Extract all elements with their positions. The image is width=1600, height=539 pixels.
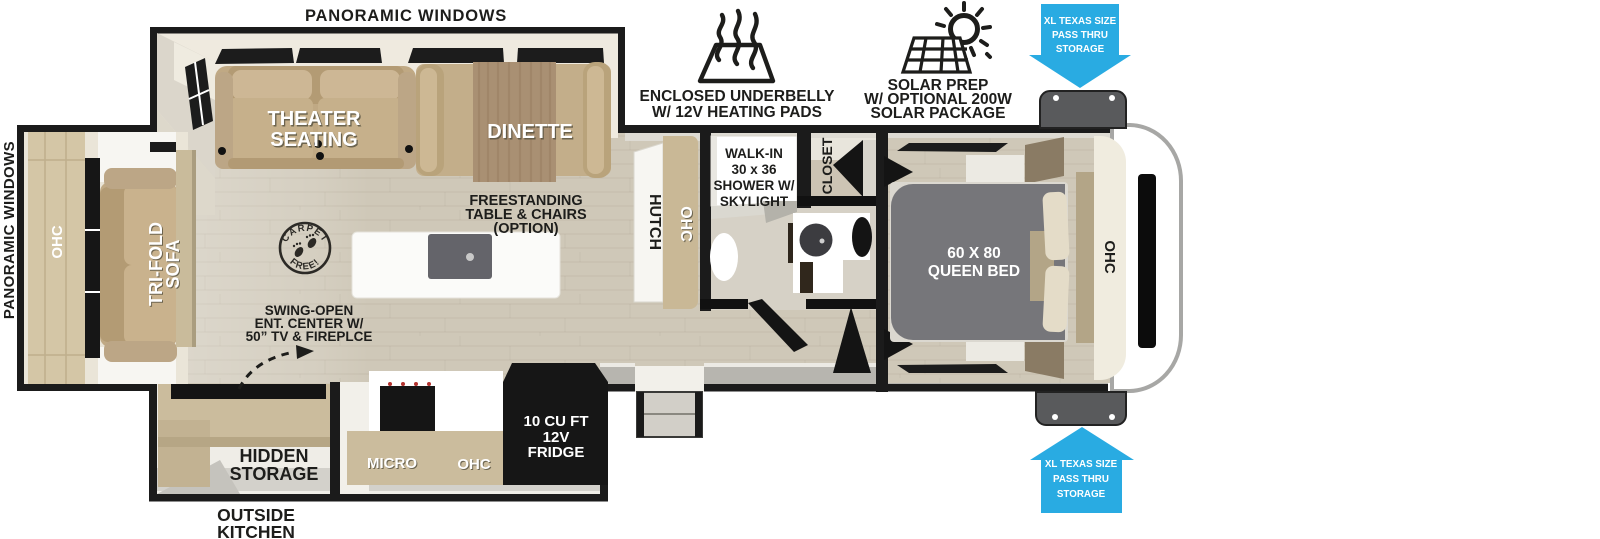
svg-text:KITCHEN: KITCHEN bbox=[217, 522, 295, 539]
svg-text:PANORAMIC WINDOWS: PANORAMIC WINDOWS bbox=[1, 141, 18, 319]
svg-text:XL TEXAS SIZE: XL TEXAS SIZE bbox=[1044, 16, 1117, 27]
svg-text:SHOWER W/: SHOWER W/ bbox=[714, 178, 795, 193]
svg-text:MICRO: MICRO bbox=[367, 455, 417, 472]
svg-text:OHC: OHC bbox=[1101, 240, 1118, 274]
svg-text:PASS THRU: PASS THRU bbox=[1052, 30, 1108, 41]
svg-text:PASS THRU: PASS THRU bbox=[1053, 474, 1109, 485]
svg-text:SOFA: SOFA bbox=[163, 239, 183, 288]
svg-text:(OPTION): (OPTION) bbox=[493, 221, 558, 237]
svg-text:OHC: OHC bbox=[457, 456, 491, 473]
svg-text:30 x 36: 30 x 36 bbox=[731, 162, 777, 177]
svg-text:W/ 12V HEATING PADS: W/ 12V HEATING PADS bbox=[652, 104, 822, 121]
svg-text:CLOSET: CLOSET bbox=[819, 137, 835, 194]
svg-text:QUEEN BED: QUEEN BED bbox=[928, 263, 1020, 280]
svg-text:SOLAR PACKAGE: SOLAR PACKAGE bbox=[871, 105, 1006, 122]
svg-text:WALK-IN: WALK-IN bbox=[725, 146, 783, 161]
svg-text:OHC: OHC bbox=[677, 206, 694, 242]
svg-text:ENCLOSED UNDERBELLY: ENCLOSED UNDERBELLY bbox=[640, 88, 836, 105]
svg-text:XL TEXAS SIZE: XL TEXAS SIZE bbox=[1045, 459, 1118, 470]
svg-text:THEATER: THEATER bbox=[268, 108, 362, 130]
svg-text:STORAGE: STORAGE bbox=[1057, 489, 1106, 500]
svg-text:HUTCH: HUTCH bbox=[646, 194, 663, 250]
svg-text:STORAGE: STORAGE bbox=[230, 464, 319, 484]
svg-text:HIDDEN: HIDDEN bbox=[239, 446, 308, 466]
svg-text:STORAGE: STORAGE bbox=[1056, 44, 1105, 55]
svg-text:DINETTE: DINETTE bbox=[487, 121, 573, 143]
svg-text:OHC: OHC bbox=[49, 225, 66, 259]
svg-text:PANORAMIC WINDOWS: PANORAMIC WINDOWS bbox=[305, 7, 507, 25]
svg-text:SKYLIGHT: SKYLIGHT bbox=[720, 194, 789, 209]
svg-text:FRIDGE: FRIDGE bbox=[528, 444, 585, 461]
svg-text:10 CU FT: 10 CU FT bbox=[523, 413, 588, 430]
svg-text:50” TV & FIREPLCE: 50” TV & FIREPLCE bbox=[246, 329, 373, 344]
svg-text:60 X 80: 60 X 80 bbox=[947, 245, 1000, 262]
svg-text:SEATING: SEATING bbox=[270, 129, 357, 151]
